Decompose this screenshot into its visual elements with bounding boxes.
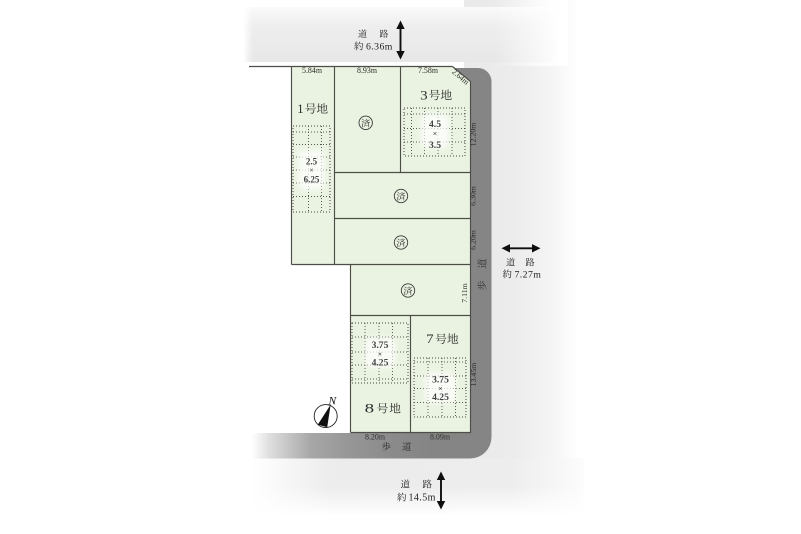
- svg-text:7.58m: 7.58m: [418, 66, 439, 75]
- svg-text:13.45m: 13.45m: [469, 363, 478, 387]
- svg-text:8.93m: 8.93m: [357, 66, 378, 75]
- svg-text:7: 7: [426, 331, 434, 346]
- svg-text:8.20m: 8.20m: [365, 433, 386, 442]
- svg-text:7.11m: 7.11m: [460, 283, 469, 302]
- svg-text:N: N: [328, 396, 338, 408]
- svg-text:8: 8: [365, 401, 375, 416]
- svg-text:8.09m: 8.09m: [430, 433, 451, 442]
- svg-text:2.5: 2.5: [306, 157, 318, 167]
- svg-text:3: 3: [420, 87, 428, 102]
- svg-text:6.25: 6.25: [304, 175, 320, 185]
- svg-text:12.20m: 12.20m: [469, 123, 478, 147]
- svg-text:5.84m: 5.84m: [302, 66, 323, 75]
- svg-text:3.5: 3.5: [429, 140, 441, 151]
- svg-text:4.25: 4.25: [432, 392, 449, 403]
- svg-text:7.27m: 7.27m: [515, 270, 542, 281]
- svg-text:×: ×: [309, 167, 313, 175]
- svg-text:1: 1: [297, 101, 304, 116]
- svg-text:6.30m: 6.30m: [469, 186, 478, 206]
- svg-text:14.5m: 14.5m: [409, 493, 436, 504]
- svg-text:4.25: 4.25: [372, 358, 389, 369]
- svg-text:6.20m: 6.20m: [469, 230, 478, 250]
- svg-text:×: ×: [433, 129, 437, 138]
- svg-text:6.36m: 6.36m: [366, 42, 393, 53]
